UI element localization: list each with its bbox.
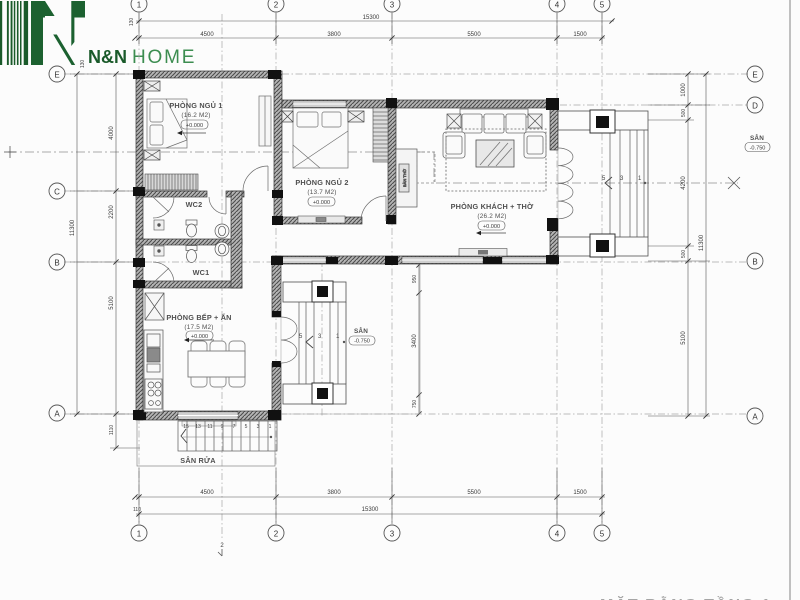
svg-text:A: A (54, 410, 60, 419)
svg-text:3800: 3800 (327, 32, 341, 38)
svg-text:9: 9 (221, 424, 224, 430)
svg-text:1500: 1500 (573, 490, 587, 496)
svg-text:(16.2 M2): (16.2 M2) (181, 112, 210, 119)
svg-text:+0.000: +0.000 (313, 200, 330, 206)
svg-text:4000: 4000 (109, 126, 115, 140)
svg-text:BÀN THỜ: BÀN THỜ (402, 168, 407, 187)
svg-text:1500: 1500 (573, 32, 587, 38)
svg-text:SÂN: SÂN (750, 133, 764, 142)
svg-text:11300: 11300 (699, 234, 705, 251)
svg-text:13: 13 (195, 424, 201, 430)
svg-text:-0.750: -0.750 (750, 145, 766, 151)
svg-text:1: 1 (137, 1, 142, 10)
svg-text:3: 3 (390, 1, 395, 10)
svg-text:D: D (752, 102, 758, 111)
svg-text:2: 2 (274, 1, 279, 10)
svg-text:2200: 2200 (109, 205, 115, 219)
svg-text:PHÒNG KHÁCH + THỜ: PHÒNG KHÁCH + THỜ (451, 202, 534, 211)
svg-text:SÂN: SÂN (354, 326, 368, 335)
svg-text:5100: 5100 (681, 331, 687, 345)
svg-text:1000: 1000 (681, 83, 687, 97)
svg-text:+0.000: +0.000 (186, 123, 203, 129)
svg-text:HOME: HOME (132, 47, 196, 68)
svg-text:15300: 15300 (363, 15, 380, 21)
svg-text:4: 4 (555, 1, 560, 10)
svg-text:E: E (54, 71, 59, 80)
svg-text:B: B (752, 258, 757, 267)
svg-text:1: 1 (269, 424, 272, 430)
svg-text:2: 2 (274, 530, 279, 539)
svg-text:SÂN RỬA: SÂN RỬA (180, 456, 216, 465)
svg-text:1: 1 (137, 530, 142, 539)
svg-text:3400: 3400 (412, 334, 418, 348)
svg-text:C: C (54, 188, 60, 197)
svg-text:E: E (752, 71, 757, 80)
svg-text:-0.750: -0.750 (354, 339, 370, 345)
svg-text:(17.5 M2): (17.5 M2) (184, 324, 213, 331)
svg-text:B: B (54, 259, 59, 268)
svg-text:5500: 5500 (467, 490, 481, 496)
svg-text:11: 11 (207, 424, 212, 430)
svg-text:3800: 3800 (327, 490, 341, 496)
svg-text:4: 4 (555, 530, 560, 539)
svg-text:+0.000: +0.000 (191, 334, 208, 340)
svg-text:500: 500 (681, 250, 687, 259)
svg-text:130: 130 (80, 60, 86, 69)
svg-text:750: 750 (412, 400, 418, 409)
svg-text:3: 3 (390, 530, 395, 539)
svg-text:PHÒNG NGỦ 1: PHÒNG NGỦ 1 (169, 101, 222, 110)
svg-text:5500: 5500 (467, 32, 481, 38)
svg-text:N&N: N&N (88, 47, 127, 67)
svg-text:5: 5 (600, 1, 605, 10)
svg-text:PHÒNG BẾP + ẤN: PHÒNG BẾP + ẤN (166, 312, 231, 322)
svg-text:5: 5 (245, 424, 248, 430)
svg-text:130: 130 (129, 18, 135, 27)
svg-text:PHÒNG NGỦ 2: PHÒNG NGỦ 2 (295, 178, 348, 187)
svg-text:500: 500 (681, 109, 687, 118)
svg-text:4500: 4500 (200, 32, 214, 38)
svg-text:3: 3 (257, 424, 260, 430)
svg-text:(13.7 M2): (13.7 M2) (307, 189, 336, 196)
svg-text:5: 5 (600, 530, 605, 539)
svg-text:7: 7 (233, 424, 236, 430)
svg-text:(26.2 M2): (26.2 M2) (477, 213, 506, 220)
svg-text:1110: 1110 (109, 425, 115, 436)
svg-text:WC1: WC1 (193, 268, 210, 277)
svg-text:A: A (752, 413, 758, 422)
svg-text:950: 950 (412, 275, 418, 284)
svg-text:+0.000: +0.000 (483, 224, 500, 230)
svg-text:5100: 5100 (109, 296, 115, 310)
svg-text:4200: 4200 (681, 176, 687, 190)
svg-text:11300: 11300 (70, 219, 76, 236)
svg-text:4500: 4500 (200, 490, 214, 496)
svg-text:WC2: WC2 (186, 200, 203, 209)
svg-text:15300: 15300 (362, 507, 379, 513)
svg-text:110: 110 (133, 507, 141, 513)
